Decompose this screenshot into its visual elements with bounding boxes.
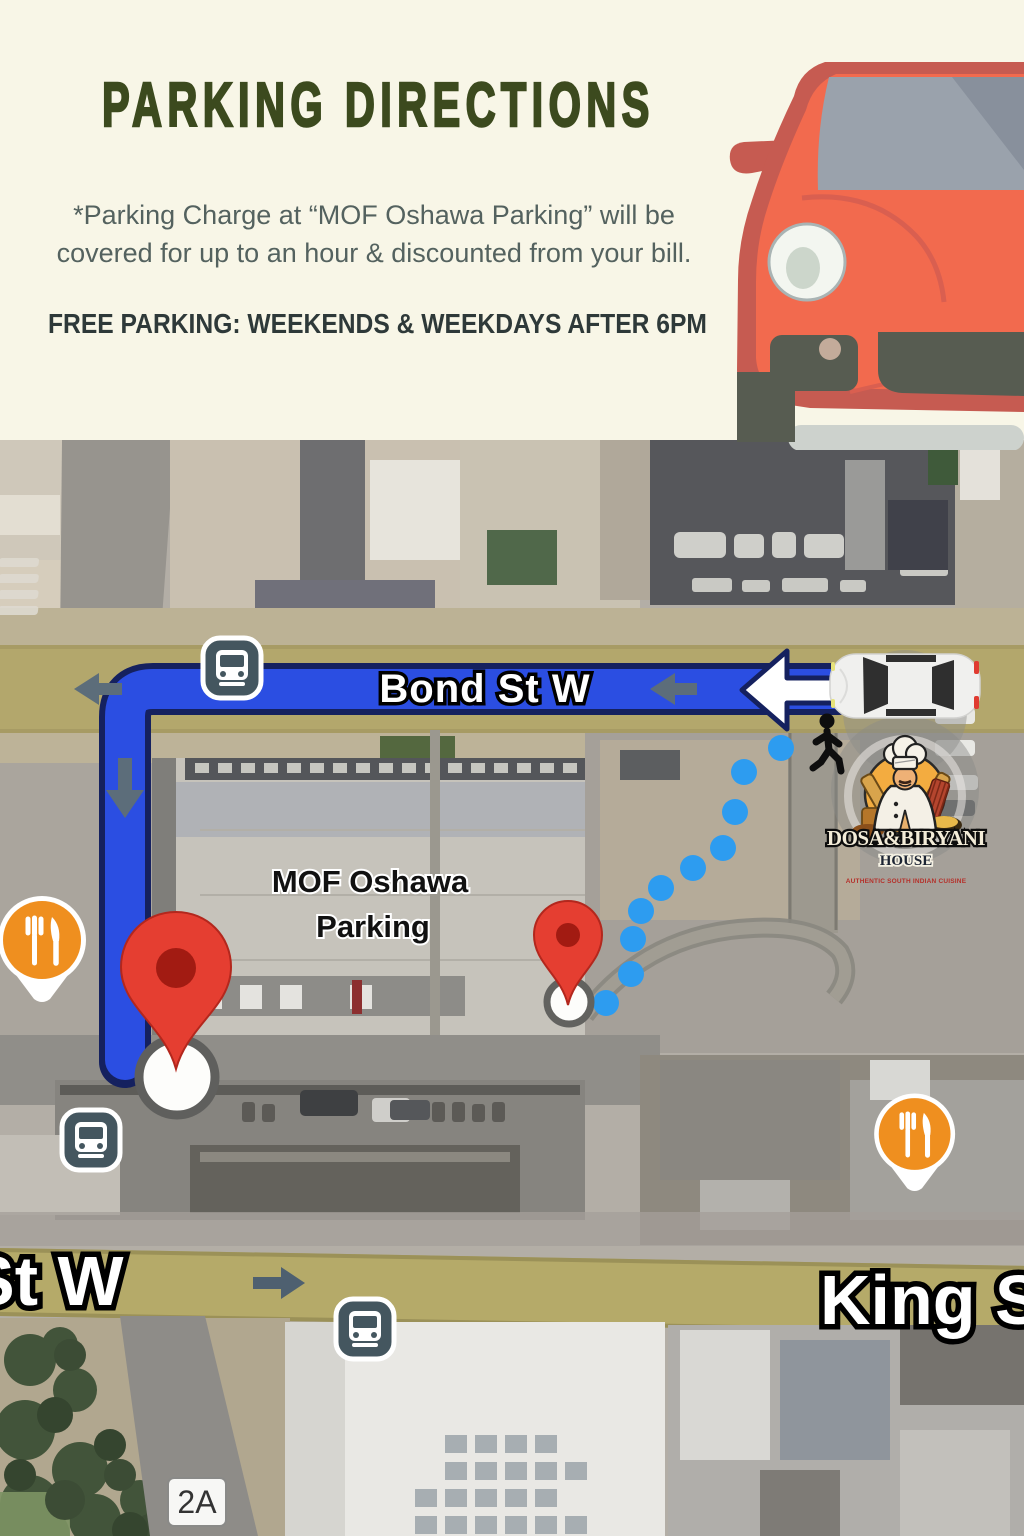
svg-text:MOF Oshawa: MOF Oshawa xyxy=(272,864,469,899)
svg-text:HOUSE: HOUSE xyxy=(880,853,933,869)
svg-text:Parking: Parking xyxy=(316,909,430,944)
svg-text:AUTHENTIC SOUTH INDIAN CUISINE: AUTHENTIC SOUTH INDIAN CUISINE xyxy=(846,878,967,885)
svg-text:King St: King St xyxy=(820,1261,1024,1339)
svg-text:DOSA&BIRYANI: DOSA&BIRYANI xyxy=(827,826,986,850)
svg-text:St W: St W xyxy=(0,1242,124,1320)
svg-text:Bond St W: Bond St W xyxy=(379,667,590,711)
svg-text:2A: 2A xyxy=(177,1484,217,1520)
